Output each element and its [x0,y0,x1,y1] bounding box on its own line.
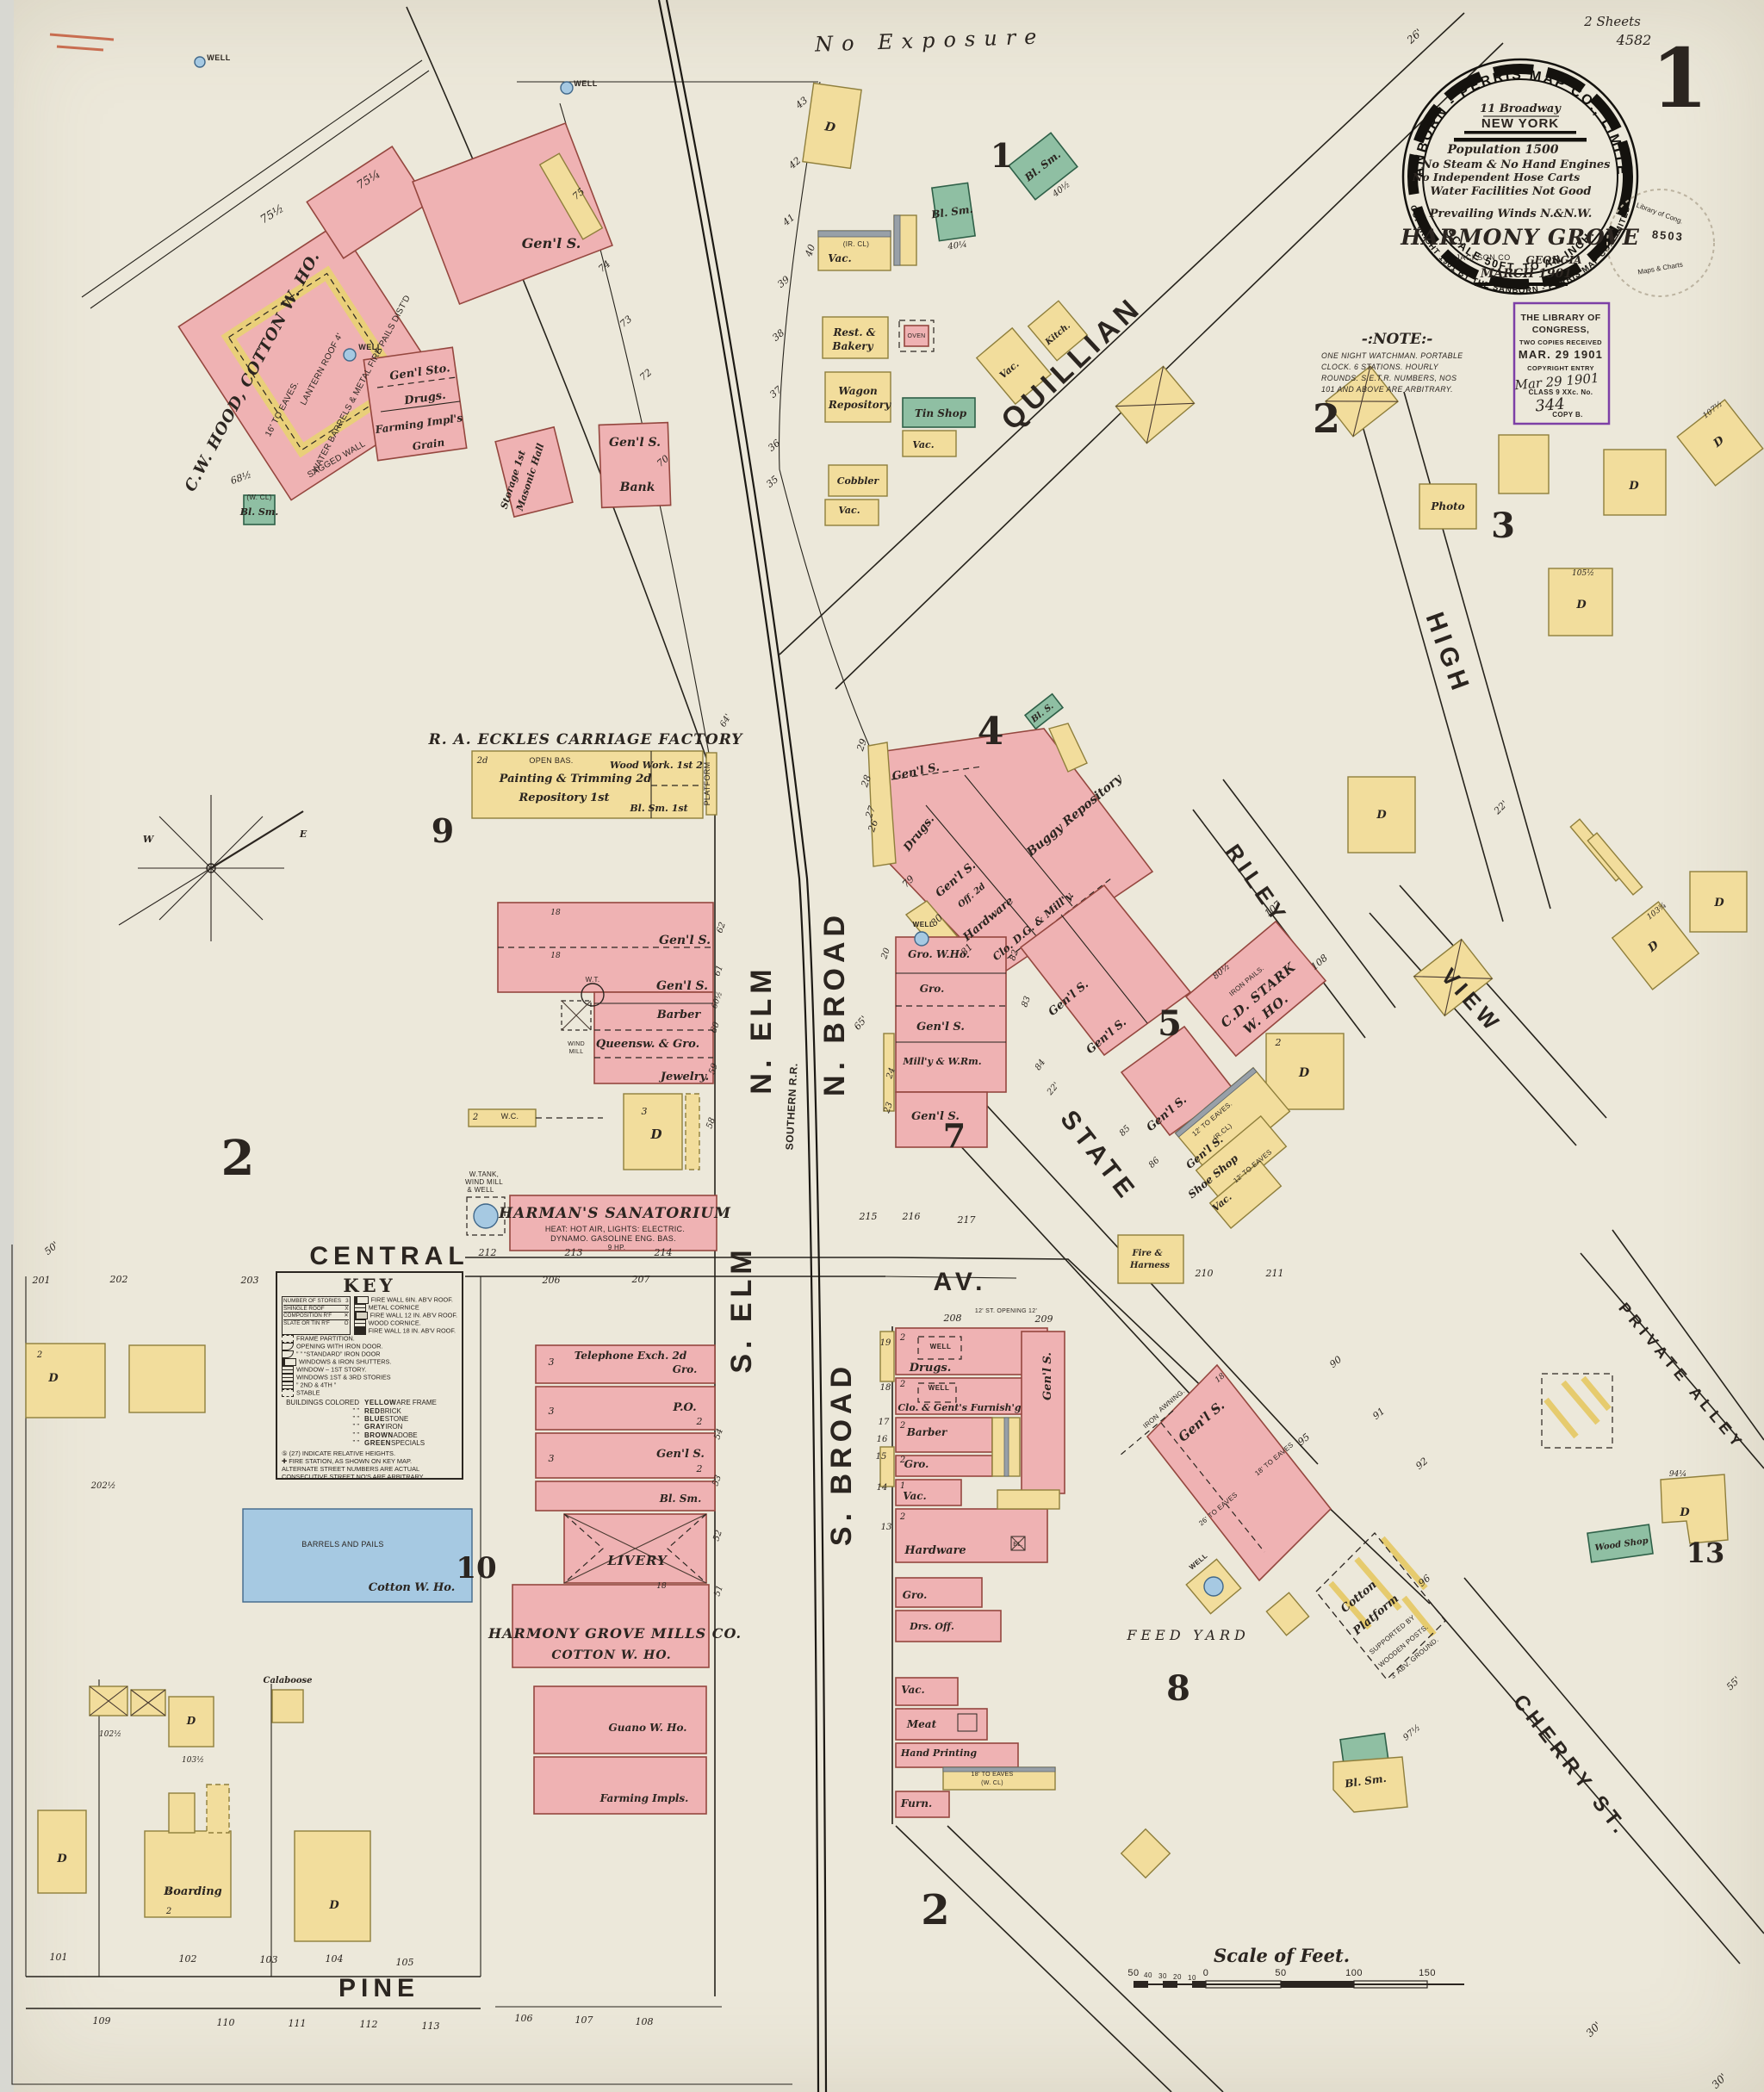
map-label: MARCH 1901 [1480,267,1572,281]
map-label: Gen'l S. [911,1110,960,1123]
map-label: D [56,1853,67,1865]
key-symbol-row: WINDOWS 1ST & 3RD STORIES [282,1374,457,1381]
map-label: 43 [792,95,810,112]
map-label: 2d [476,756,488,766]
map-label: 9 HP. [608,1244,625,1251]
map-label: 216 [902,1211,921,1222]
map-label: LIVERY [606,1553,668,1568]
map-label: 105 [396,1957,414,1968]
note-line: CLOCK. 6 STATIONS. HOURLY [1321,362,1473,373]
key-symbol-row: WINDOWS & IRON SHUTTERS. [282,1358,457,1366]
key-symbol-icon [354,1319,366,1327]
key-symbol-icon [282,1343,294,1350]
map-label: 2 [899,1512,905,1522]
map-label: 111 [289,2018,307,2029]
map-label: 30' [1710,2071,1730,2091]
map-label: 106 [515,2013,533,2024]
map-label: 208 [943,1313,962,1324]
map-label: WIND MILL [465,1178,503,1186]
map-label: 1 [900,1481,905,1491]
map-label: N. BROAD [818,910,851,1096]
map-label: Vac. [838,505,860,516]
map-label: Jewelry. [658,1071,709,1083]
map-label: 40 [803,243,817,259]
map-label: HARMONY GROVE MILLS CO. [488,1625,742,1642]
map-label: Gen'l S. [522,235,581,251]
map-label: HIGH [1419,609,1475,698]
map-label: Vac. [901,1684,924,1696]
map-label: PLATFORM [703,762,711,806]
map-label: No Independent Hose Carts [1412,171,1580,183]
map-label: Gro. [903,1589,928,1601]
map-label: W [143,834,155,845]
map-label: WELL [358,343,382,351]
map-label: Gen'l S. [609,436,661,450]
map-label: PRIVATE ALLEY [1615,1300,1748,1454]
map-label: 94¼ [1669,1469,1686,1479]
map-label: 101 [50,1952,68,1963]
key-symbol-icon [282,1358,296,1366]
map-label: Photo [1430,500,1464,512]
map-label: NEW YORK [1481,116,1559,131]
key-symbol-row: OPENING WITH IRON DOOR. [282,1343,457,1350]
map-label: 40 [1144,1971,1152,1979]
map-label: Gro. [920,983,945,995]
map-label: 20 [1173,1973,1182,1981]
map-label: Gen'l S. [656,1448,705,1461]
map-label: 18' TO EAVES [972,1772,1014,1778]
key-footer-rows: ⑤ (27) INDICATE RELATIVE HEIGHTS.✚ FIRE … [282,1450,457,1481]
map-label: D [328,1899,339,1912]
map-label: 109 [93,2015,111,2027]
map-label: MILL [569,1049,584,1055]
map-label: 10 [456,1551,496,1586]
map-label: 3 [549,1356,555,1368]
map-label: Gro. [904,1458,929,1470]
note-block: -:NOTE:- ONE NIGHT WATCHMAN. PORTABLE CL… [1321,331,1473,395]
map-label: D [649,1127,661,1142]
map-label: N. ELM [745,964,778,1094]
map-label: 107 [575,2014,593,2026]
map-label: WELL [207,53,231,62]
map-label: 3 [549,1453,555,1464]
map-label: 100 [1345,1968,1363,1978]
key-symbol-row: ” 2ND & 4TH ” [282,1381,457,1389]
map-label: E [299,829,307,840]
map-label: Calaboose [263,1676,312,1685]
key-roof-table: NUMBER OF STORIES3SHINGLE ROOFXCOMPOSITI… [282,1296,351,1335]
map-label: 210 [1195,1268,1214,1279]
map-label: Library of Cong. [1636,202,1685,226]
map-label: 65' [852,1014,870,1032]
key-color-row: ” ”RED BRICK [282,1407,457,1415]
map-label: 50' [42,1239,60,1257]
map-label: 105½ [1572,568,1594,578]
map-label: 42 [786,155,803,172]
map-label: Repository 1st [518,791,609,804]
key-symbol-row: FIRE WALL 18 IN. AB'V ROOF. [354,1327,457,1335]
map-label: R. A. ECKLES CARRIAGE FACTORY [428,731,744,748]
map-label: 209 [1034,1313,1053,1325]
map-label: D [47,1372,59,1385]
map-label: 2 [165,1907,171,1916]
map-label: Bl. Sm. [239,506,279,518]
building-livery [564,1514,706,1583]
map-label: 1 [1651,31,1708,127]
map-label: P.O. [672,1401,696,1414]
key-symbol-rows: FRAME PARTITION.OPENING WITH IRON DOOR.”… [282,1335,457,1397]
red-pencil-marks [50,34,114,50]
map-label: 9 [432,811,454,850]
map-label: 41 [780,212,797,229]
map-label: Vac. [828,252,851,264]
key-symbol-icon [354,1304,366,1312]
map-label: 84 [1034,1058,1047,1072]
map-label: 2 [221,1130,255,1187]
key-symbol-icon [282,1381,294,1389]
map-label: Fire & [1131,1249,1162,1258]
map-label: 2 [472,1113,478,1122]
map-label: 73 [618,313,634,330]
map-label: W.T. [586,976,600,984]
key-symbol-icon [282,1374,294,1381]
map-label: THE LIBRARY OF [1520,313,1600,323]
key-symbol-icon [282,1389,294,1397]
map-label: Painting & Trimming 2d [499,773,652,785]
map-label: Clo. & Gent's Furnish'g [898,1402,1022,1413]
map-label: 102½ [99,1729,121,1739]
map-label: 2 [899,1456,905,1465]
map-label: (W. CL) [981,1780,1003,1786]
key-color-row: ” ”GRAY IRON [282,1423,457,1431]
map-label: 2 [1313,395,1340,442]
map-label: 18 [880,1383,891,1393]
map-label: AV. [933,1268,987,1296]
map-label: 2 [899,1421,905,1431]
map-label: 35 [764,474,780,490]
map-label: 52 [711,1529,724,1543]
map-label: WELL [929,1384,950,1392]
map-label: No Steam & No Hand Engines [1421,158,1612,171]
key-title: KEY [282,1275,457,1296]
map-label: 75½ [258,202,287,227]
map-label: 2 [36,1350,42,1360]
map-label: 12' ST. OPENING 12' [975,1308,1037,1314]
map-label: 72 [637,367,654,383]
map-label: CENTRAL [309,1242,469,1270]
map-label: 86 [1147,1155,1162,1170]
map-label: 22' [1045,1081,1061,1098]
map-label: 19 [880,1338,891,1348]
map-label: 92 [1413,1456,1430,1472]
map-label: OVEN [907,333,925,339]
map-label: Scale of Feet. [1214,1945,1350,1966]
map-label: 95 [1295,1431,1312,1448]
map-label: PINE [339,1974,419,2002]
map-label: 2 [165,1888,171,1897]
map-label: Barber [906,1426,948,1438]
map-label: Vac. [903,1490,926,1502]
map-label: Queensw. & Gro. [596,1038,699,1051]
map-label: 2 [1275,1037,1282,1048]
map-label: 2 [696,1463,703,1474]
map-label: Wood Work. 1st 2 [610,760,703,771]
key-color-rows: BUILDINGS COLOREDYELLOW ARE FRAME” ”RED … [282,1399,457,1447]
map-label: HARMONY GROVE [1400,225,1640,250]
key-color-row: ” ”BROWN ADOBE [282,1431,457,1439]
map-label: 203 [240,1275,259,1286]
map-label: 10 [1188,1974,1196,1982]
map-label: Bakery [831,340,873,352]
map-label: 90 [1327,1354,1344,1370]
map-label: Harness [1129,1261,1170,1270]
map-label: 5 [1158,1003,1182,1044]
map-label: 18 [550,952,561,960]
map-label: D [1628,480,1639,493]
key-symbol-row: WINDOW – 1ST STORY. [282,1366,457,1374]
map-label: Furn. [900,1797,932,1810]
map-label: Bl. Sm. 1st [629,803,687,814]
map-canvas: SANBORN - PERRIS MAP CO., LIMITED COPYRI… [0,0,1764,2092]
map-label: 2 [696,1416,703,1427]
map-label: DYNAMO. GASOLINE ENG. BAS. [550,1234,676,1243]
map-label: STATE [1054,1105,1142,1207]
map-label: 14 [877,1483,888,1493]
key-symbol-icon [354,1296,369,1304]
map-label: Rest. & [832,326,875,338]
map-label: 11 Broadway [1480,102,1562,115]
note-title: -:NOTE:- [1321,331,1473,348]
map-label: 13 [1686,1536,1725,1569]
map-label: HARMAN'S SANATORIUM [498,1205,731,1222]
map-label: 96 [1416,1573,1432,1589]
map-label: 102 [179,1953,197,1965]
map-label: 18 [656,1582,667,1591]
map-label: SOUTHERN R.R. [783,1063,799,1151]
map-label: 150 [1419,1968,1436,1978]
map-label: 207 [631,1274,650,1285]
key-symbol-row: STABLE [282,1389,457,1397]
map-label: Gen'l S. [659,934,711,947]
map-label: 113 [422,2021,440,2032]
map-label: Meat [906,1718,937,1730]
map-label: 8503 [1651,227,1684,243]
map-label: 37 [767,384,784,400]
map-label: 214 [654,1247,673,1258]
key-symbol-icon [282,1350,294,1358]
key-symbol-icon [354,1312,368,1319]
map-label: 83 [1020,995,1033,1009]
note-line: ROUNDS. S.E.T.R. NUMBERS, NOS [1321,373,1473,384]
key-symbol-row: ” ” “STANDARD” IRON DOOR [282,1350,457,1358]
map-label: Drugs. [909,1362,952,1375]
map-label: 85 [1118,1124,1133,1139]
map-label: 55' [1724,1674,1742,1692]
map-label: 3 [549,1406,555,1417]
map-label: Prevailing Winds N.&N.W. [1429,208,1592,220]
map-label: HEAT: HOT AIR, LIGHTS: ELECTRIC. [545,1225,685,1233]
key-symbol-icon [282,1335,294,1343]
map-label: W.C. [501,1112,519,1120]
key-footer-row: ✚ FIRE STATION, AS SHOWN ON KEY MAP. [282,1457,457,1465]
map-label: Guano W. Ho. [609,1722,687,1734]
map-label: 62 [715,921,728,934]
map-label: 74 [596,258,612,275]
map-label: 212 [478,1247,497,1258]
map-label: 213 [564,1247,583,1258]
map-label: Population 1500 [1447,143,1559,157]
map-label: RILEY [1221,840,1295,930]
key-footer-row: ⑤ (27) INDICATE RELATIVE HEIGHTS. [282,1450,457,1457]
key-roof-row: SLATE OR TIN R'FO [283,1320,349,1327]
map-label: D [1376,809,1387,822]
map-label: Hardware [904,1544,966,1557]
map-label: 13 [881,1523,892,1532]
map-label: YARD [1193,1627,1250,1643]
map-label: 64' [718,712,733,729]
map-label: 97½ [1401,1723,1422,1743]
map-label: 2 [899,1380,905,1389]
map-label: EL. [1013,1542,1022,1548]
map-label: 39 [775,274,792,290]
key-symbol-icon [282,1366,294,1374]
key-roof-row: COMPOSITION R'F✕ [283,1313,349,1320]
map-label: Gen'l S. [656,979,708,993]
map-label: D [1575,599,1587,611]
map-label: No Exposure [814,24,1046,56]
map-label: 1 [991,136,1013,175]
map-label: Cotton W. Ho. [369,1581,456,1594]
map-label: S. BROAD [825,1362,858,1546]
map-label: W.TANK, [469,1170,499,1178]
map-label: 211 [1265,1268,1284,1279]
key-footer-row: ALTERNATE STREET NUMBERS ARE ACTUAL [282,1465,457,1473]
map-label: Telephone Exch. 2d [575,1350,687,1362]
map-label: MAR. 29 1901 [1519,348,1603,361]
map-label: Water Facilities Not Good [1431,185,1592,198]
map-label: Wagon [838,385,877,397]
map-label: Boarding [163,1885,222,1898]
map-label: 201 [32,1275,51,1286]
map-label: S. ELM [725,1245,758,1373]
map-label: 15 [876,1452,887,1462]
map-label: 3 [642,1106,648,1117]
map-label: 68½ [229,469,253,487]
map-label: Hand Printing [900,1747,978,1759]
map-label: COTTON W. HO. [551,1648,671,1662]
map-label: Barber [656,1009,702,1021]
map-label: 40¼ [947,240,968,252]
map-label: 30 [1158,1972,1167,1980]
building-footprints [26,57,1763,1941]
map-label: 2 Sheets [1583,14,1641,29]
map-label: CHERRY ST. [1508,1691,1633,1841]
map-label: 103½ [182,1755,204,1765]
sanborn-map-sheet: SANBORN - PERRIS MAP CO., LIMITED COPYRI… [0,0,1764,2092]
map-label: Mill'y & W.Rm. [902,1056,981,1067]
compass-rose [119,795,303,941]
map-label: Bl. Sm. [659,1493,702,1505]
map-label: & WELL [467,1186,494,1194]
key-color-row: ” ”GREEN SPECIALS [282,1439,457,1447]
note-line: 101 AND ABOVE ARE ARBITRARY. [1321,384,1473,395]
map-label: COPY B. [1552,411,1583,419]
map-label: TWO COPIES RECEIVED [1519,338,1602,346]
map-label: Repository [828,399,891,411]
map-label: D [1298,1066,1310,1080]
map-label: FEED [1126,1627,1184,1643]
map-label: 202 [109,1274,128,1285]
map-label: 217 [957,1214,976,1226]
map-label: WELL [913,921,935,928]
map-label: 36 [766,438,782,454]
map-label: 50 [1127,1968,1139,1978]
map-label: 215 [859,1211,878,1222]
map-label: 91 [1370,1406,1387,1422]
key-color-row: BUILDINGS COLOREDYELLOW ARE FRAME [282,1399,457,1406]
map-label: 4582 [1616,32,1652,48]
key-color-row: ” ”BLUE STONE [282,1415,457,1423]
map-label: 30' [1584,2020,1604,2039]
map-label: Cobbler [837,475,880,487]
lumber-shed [1542,1374,1612,1448]
map-label: Gro. W.Ho. [908,948,970,960]
map-label: 108 [636,2016,654,2027]
map-label: 3 [1491,506,1515,546]
scale-bar [1134,1981,1464,1988]
key-symbol-rows: FIRE WALL 6IN. AB'V ROOF.METAL CORNICEFI… [354,1296,457,1335]
map-label: 26' [1404,27,1425,47]
key-symbol-icon [354,1327,366,1335]
map-label: 112 [360,2019,378,2030]
map-label: 17 [879,1418,890,1427]
map-label: 20 [879,947,892,961]
key-legend: KEY NUMBER OF STORIES3SHINGLE ROOFXCOMPO… [276,1271,463,1480]
map-label: Tin Shop [915,407,967,419]
map-label: Farming Impls. [599,1792,689,1804]
map-label: WELL [930,1343,952,1350]
map-label: WIND [568,1041,585,1047]
map-label: 0 [1203,1968,1209,1978]
map-label: 4 [978,710,1004,754]
map-label: Vac. [912,439,934,450]
key-roof-row: SHINGLE ROOFX [283,1306,349,1313]
map-label: D [186,1715,196,1727]
map-label: (IR. CL) [843,240,869,248]
map-label: JACKSON CO [1456,253,1511,262]
map-label: Gen'l S. [1041,1352,1054,1400]
map-label: 8 [1166,1668,1190,1709]
map-label: Gen'l S. [916,1021,965,1034]
map-label: OPEN BAS. [529,756,573,765]
map-label: 2 [899,1333,905,1343]
map-label: Bank [619,481,655,494]
map-label: 16 [877,1435,888,1444]
map-label: 104 [326,1953,344,1965]
key-symbol-row: FRAME PARTITION. [282,1335,457,1343]
map-label: WELL [574,79,598,88]
map-label: 3' ABV. GROUND. [1389,1636,1440,1680]
key-roof-row: NUMBER OF STORIES3 [283,1298,349,1306]
map-label: 206 [542,1275,561,1286]
map-label: GEORGIA [1526,254,1582,266]
map-label: Drs. Off. [909,1621,954,1632]
map-label: Gro. [673,1363,698,1375]
map-label: D [1679,1506,1690,1519]
map-label: D [1713,897,1724,909]
map-label: Maps & Charts [1637,261,1684,276]
map-label: 2 [921,1886,949,1934]
